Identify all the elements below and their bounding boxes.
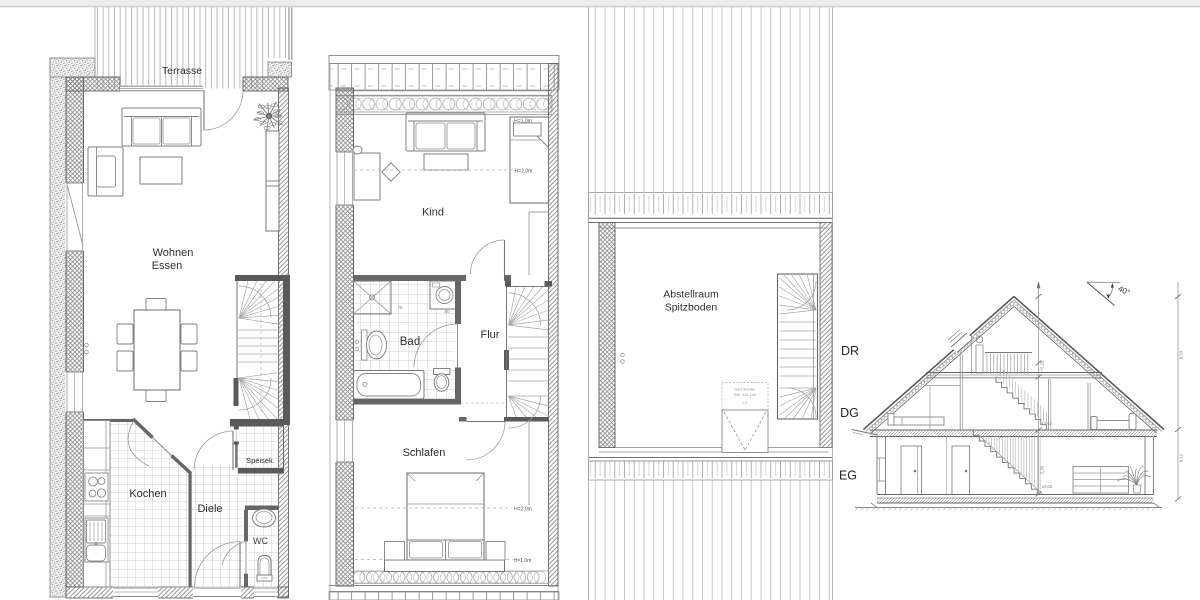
- svg-text:H=2,0m: H=2,0m: [514, 507, 532, 513]
- svg-text:Flur: Flur: [481, 329, 500, 341]
- svg-text:Ref. 114-140: Ref. 114-140: [734, 392, 757, 397]
- svg-text:DR: DR: [841, 344, 859, 358]
- svg-text:Terrasse: Terrasse: [162, 65, 202, 77]
- svg-text:Abstellraum: Abstellraum: [663, 289, 719, 301]
- svg-text:Diele: Diele: [197, 503, 222, 515]
- svg-text:5,12: 5,12: [1179, 453, 1184, 462]
- svg-text:8,53: 8,53: [1179, 350, 1184, 359]
- svg-text:+5,25: +5,25: [1040, 360, 1045, 371]
- svg-text:+2,62: +2,62: [1041, 421, 1052, 426]
- svg-text:EG: EG: [839, 469, 857, 483]
- svg-text:±0,00: ±0,00: [1042, 484, 1053, 489]
- svg-text:H=1,0m: H=1,0m: [514, 558, 532, 564]
- svg-text:H=2,0m: H=2,0m: [515, 169, 533, 175]
- svg-text:Schlafen: Schlafen: [403, 447, 446, 459]
- svg-text:LD: LD: [743, 401, 748, 405]
- svg-text:Essen: Essen: [152, 260, 183, 272]
- svg-text:2,30: 2,30: [1040, 465, 1045, 474]
- svg-text:Wohnen: Wohnen: [153, 247, 194, 259]
- svg-text:Kind: Kind: [422, 207, 444, 219]
- svg-text:H=1,0m: H=1,0m: [514, 118, 532, 124]
- svg-text:DG: DG: [840, 406, 859, 420]
- svg-text:Dachfenster: Dachfenster: [735, 387, 757, 392]
- svg-text:WC: WC: [253, 536, 268, 546]
- svg-text:Kochen: Kochen: [129, 488, 166, 500]
- svg-text:70: 70: [397, 305, 403, 310]
- svg-text:Bad: Bad: [400, 336, 420, 348]
- svg-text:Spitzboden: Spitzboden: [665, 302, 718, 314]
- svg-text:Speisek.: Speisek.: [246, 456, 275, 465]
- svg-text:80: 80: [444, 309, 450, 314]
